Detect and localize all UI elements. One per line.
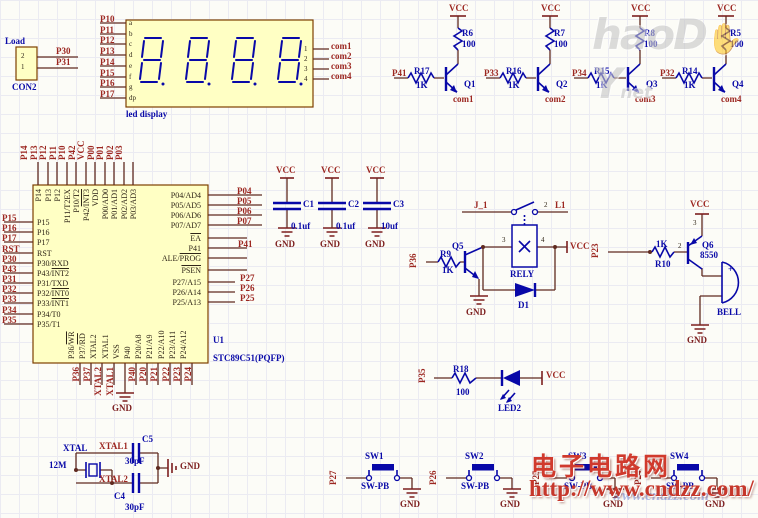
mcu-pin-name: P10/T2 [72, 189, 81, 213]
pin-number: 3 [304, 65, 308, 73]
mcu-part-number: STC89C51(PQFP) [213, 353, 285, 363]
net-label: P33 [484, 68, 499, 78]
designator: R17 [414, 66, 430, 76]
designator: R18 [453, 364, 469, 374]
value-label: 1K [442, 265, 454, 275]
mcu-pin-name: VDD [91, 189, 100, 206]
pin-name: g [129, 83, 133, 91]
net-label: P05 [237, 196, 252, 206]
net-label: P27 [240, 273, 255, 283]
pin-name: f [129, 73, 131, 81]
value-label: 1K [508, 80, 520, 90]
mcu-pin-name: P00/AD0 [101, 189, 110, 219]
power-label-vcc: VCC [541, 3, 561, 13]
mcu-pin-name: P41 [112, 244, 201, 253]
part-type-label: SW-PB [361, 481, 389, 491]
net-label: P15 [100, 68, 115, 78]
net-label: P06 [237, 206, 252, 216]
net-label: com1 [453, 94, 474, 104]
mcu-pin-name: XTAL1 [101, 334, 110, 359]
mcu-pin-name: P22/A10 [157, 331, 166, 359]
hand-icon: ✋ [706, 22, 743, 57]
net-label: P40 [127, 367, 137, 382]
power-label-gnd: GND [320, 239, 340, 249]
value-label: 1K [416, 80, 428, 90]
net-label: P41 [238, 239, 253, 249]
power-label-gnd: GND [112, 403, 132, 413]
designator: C5 [142, 434, 153, 444]
power-label-gnd: GND [466, 307, 486, 317]
power-label-vcc: VCC [276, 165, 296, 175]
gnd-symbol [116, 393, 134, 401]
con2-designator: CON2 [12, 82, 37, 92]
mcu-pin-name: P17 [37, 238, 49, 247]
net-label: P34 [572, 68, 587, 78]
power-label-vcc: VCC [449, 3, 469, 13]
mcu-pin-name: P27/A15 [112, 278, 201, 287]
net-label: P37 [82, 367, 92, 382]
value-label: 100 [456, 387, 470, 397]
pin-number: 2 [678, 242, 682, 250]
power-label-vcc: VCC [546, 370, 566, 380]
net-label: P14 [19, 146, 29, 161]
mcu-pin-name: ALE/PROG [112, 254, 201, 263]
net-label-xtal2: XTAL2 [99, 474, 128, 484]
net-label: P16 [2, 223, 17, 233]
mcu-pin-name: P04/AD4 [112, 191, 201, 200]
mcu-pin-name: P30/RXD [37, 259, 69, 268]
net-label: P20 [138, 367, 148, 382]
net-label-p26: P26 [428, 471, 438, 486]
mcu-pin-name: XTAL2 [89, 334, 98, 359]
designator: Q6 [702, 240, 714, 250]
load-label: Load [5, 36, 25, 46]
designator: C1 [303, 199, 314, 209]
relay-designator: RELY [510, 269, 534, 279]
net-label: P03 [114, 146, 124, 161]
power-label-gnd: GND [687, 335, 707, 345]
net-label: P35 [2, 315, 17, 325]
value-label: 30pF [125, 502, 145, 512]
designator: Q2 [556, 79, 568, 89]
display-caption: led display [126, 109, 167, 119]
pin-name: a [129, 19, 132, 27]
designator: SW2 [465, 451, 484, 461]
mcu-pin-name: P23/A11 [168, 331, 177, 359]
net-label: P22 [161, 367, 171, 382]
pin-number: 1 [304, 45, 308, 53]
designator: Q5 [452, 241, 464, 251]
net-label-l1: L1 [555, 200, 566, 210]
mcu-pin-name: P24/A12 [179, 331, 188, 359]
power-label-vcc: VCC [690, 199, 710, 209]
net-label-p35: P35 [417, 369, 427, 384]
net-label: P21 [149, 367, 159, 382]
power-label-vcc: VCC [570, 241, 590, 251]
designator: R7 [554, 28, 565, 38]
led2-circuit [434, 370, 542, 403]
designator: D1 [518, 300, 529, 310]
net-label-p30: P30 [56, 46, 71, 56]
value-label: 100 [462, 39, 476, 49]
designator: R10 [655, 259, 671, 269]
net-label: P12 [100, 35, 115, 45]
pin-number: 2 [21, 52, 25, 60]
designator: SW1 [365, 451, 384, 461]
net-label: P13 [100, 46, 115, 56]
pin-number: 2 [304, 55, 308, 63]
crystal-label: XTAL [63, 443, 87, 453]
pin-name: e [129, 62, 132, 70]
mcu-pin-name: P13 [44, 189, 53, 201]
net-label: P10 [100, 14, 115, 24]
site-url-watermark: http://www.cndzz.com/ [529, 476, 754, 502]
net-label: P23 [172, 367, 182, 382]
pin-name: dp [129, 94, 136, 102]
mcu-pin-name: P32/INT0 [37, 289, 69, 298]
value-label: 100 [554, 39, 568, 49]
net-label: P31 [2, 274, 17, 284]
mcu-pin-name: P16 [37, 228, 49, 237]
net-label: P24 [183, 367, 193, 382]
mcu-pin-name: P12 [53, 189, 62, 201]
mcu-pin-name: P37/RD [78, 333, 87, 359]
pin-name: d [129, 51, 133, 59]
net-label-p23: P23 [590, 244, 600, 259]
designator: R6 [462, 28, 473, 38]
mcu-pin-name: P06/AD6 [112, 211, 201, 220]
mcu-pin-name: P21/A9 [145, 335, 154, 359]
mcu-pin-name: P20/A8 [134, 335, 143, 359]
net-label: P34 [2, 305, 17, 315]
net-label-com4: com4 [331, 71, 352, 81]
net-label: P26 [240, 283, 255, 293]
net-label: com2 [545, 94, 566, 104]
mcu-pin-name: RST [37, 249, 52, 258]
power-label-vcc: VCC [76, 141, 86, 161]
net-label-com3: com3 [331, 61, 352, 71]
net-label: P11 [100, 25, 114, 35]
net-label: P32 [2, 284, 17, 294]
mcu-pin-name: P26/A14 [112, 288, 201, 297]
power-label-gnd: GND [180, 461, 200, 471]
value-label: 12M [49, 460, 67, 470]
value-label: 0.1uf [291, 221, 310, 231]
net-label: P17 [2, 233, 17, 243]
net-label: P25 [240, 293, 255, 303]
mcu-pin-name: PSEN [112, 266, 201, 275]
net-label: P14 [100, 57, 115, 67]
net-label-com2: com2 [331, 51, 352, 61]
designator: LED2 [498, 403, 521, 413]
haodiy-logo-watermark: haoD✋Ynet [592, 10, 758, 108]
designator: C4 [114, 491, 125, 501]
mcu-pin-name: EA [112, 234, 201, 243]
mcu-pin-name: P25/A13 [112, 298, 201, 307]
mcu-designator: U1 [213, 335, 224, 345]
crystal-symbol [89, 464, 97, 476]
designator: C2 [348, 199, 359, 209]
net-label: P41 [392, 68, 407, 78]
mcu-pin-name: P07/AD7 [112, 221, 201, 230]
value-label: 0.1uf [336, 221, 355, 231]
mcu-pin-name: P35/T1 [37, 320, 61, 329]
net-label-p36: P36 [408, 254, 418, 269]
value-label: 10uf [381, 221, 398, 231]
designator: R16 [506, 66, 522, 76]
mcu-pin-name: P42/INT3 [82, 189, 91, 221]
net-label: P33 [2, 294, 17, 304]
net-label: P36 [71, 367, 81, 382]
pin-name: b [129, 30, 133, 38]
mcu-pin-name: P15 [37, 218, 49, 227]
power-label-vcc: VCC [321, 165, 341, 175]
digit-driver-q1 [394, 16, 466, 93]
net-label: P17 [100, 89, 115, 99]
led-symbol [503, 370, 520, 386]
designator: C3 [393, 199, 404, 209]
mcu-pin-name: P36/WR [67, 331, 76, 359]
net-label: P43 [2, 264, 17, 274]
net-label-p27: P27 [328, 471, 338, 486]
net-label: P12 [38, 146, 48, 161]
digit-driver-q2 [486, 16, 558, 93]
power-label-vcc: VCC [366, 165, 386, 175]
part-type-label: SW-PB [461, 481, 489, 491]
mcu-pin-name: P40 [123, 347, 132, 359]
net-label: XTAL2 [93, 367, 103, 396]
mcu-pin-name: P33/INT1 [37, 299, 69, 308]
net-label: P30 [2, 254, 17, 264]
value-label: 30pF [125, 456, 145, 466]
net-label: P15 [2, 213, 17, 223]
pin-number: 3 [693, 219, 697, 227]
net-label-j1: J_1 [474, 200, 488, 210]
mcu-pin-name: P11/T2EX [63, 189, 72, 223]
net-label: RST [2, 244, 20, 254]
pin-name: c [129, 40, 132, 48]
bell-label: BELL [717, 307, 741, 317]
pin-number: 1 [21, 63, 25, 71]
net-label-p31: P31 [56, 57, 71, 67]
schematic-canvas: Load 2 1 P30 P31 CON2 P10 P11 P12 P13 P1… [0, 0, 758, 518]
pin-number: 3 [502, 236, 506, 244]
value-label: 8550 [700, 250, 718, 260]
power-label-gnd: GND [400, 499, 420, 509]
power-label-gnd: GND [500, 499, 520, 509]
net-label-com1: com1 [331, 41, 352, 51]
mcu-pin-name: P34/T0 [37, 310, 61, 319]
flyback-diode [515, 283, 535, 297]
designator: R9 [440, 249, 451, 259]
pin-number: 2 [544, 201, 548, 209]
value-label: 1K [656, 239, 668, 249]
power-label-gnd: GND [365, 239, 385, 249]
mcu-pin-name: P31/TXD [37, 279, 68, 288]
pin-number: 4 [541, 236, 545, 244]
mcu-pin-name: P05/AD5 [112, 201, 201, 210]
designator: Q1 [464, 79, 476, 89]
net-label-xtal1: XTAL1 [99, 441, 128, 451]
net-label: P16 [100, 78, 115, 88]
mcu-pin-name: P14 [34, 189, 43, 201]
mcu-pin-name: P43/INT2 [37, 269, 69, 278]
net-label: P07 [237, 216, 252, 226]
bell-plus-terminal: + [728, 264, 733, 274]
net-label: P10 [57, 146, 67, 161]
power-label-gnd: GND [275, 239, 295, 249]
net-label: P04 [237, 186, 252, 196]
mcu-pin-name: VSS [112, 344, 121, 359]
net-label: P01 [95, 146, 105, 161]
designator: SW4 [670, 451, 689, 461]
pin-number: 4 [304, 75, 308, 83]
net-label: XTAL1 [105, 367, 115, 396]
